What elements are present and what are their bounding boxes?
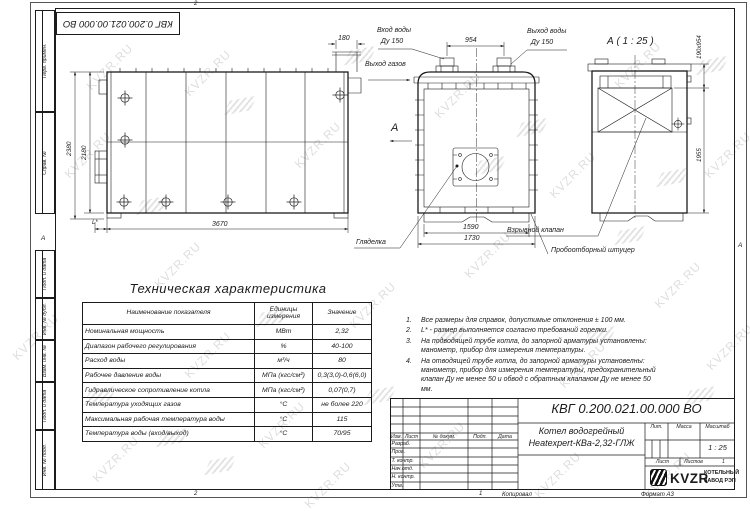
spec-header: Единицы измерения <box>255 303 313 324</box>
sign-row-nkontr: Н. контр. <box>392 475 415 480</box>
sheet-label: Лист <box>645 460 680 465</box>
spec-header: Значение <box>313 303 371 324</box>
spec-cell: % <box>255 339 313 354</box>
note-item: 3.На подводящей трубе котла, до запорной… <box>406 337 660 356</box>
dim-flue-width: 180 <box>338 35 350 42</box>
spec-cell: 2,32 <box>313 324 371 339</box>
spec-cell: °С <box>255 426 313 441</box>
sign-row-razrab: Разраб. <box>392 442 411 447</box>
note-item: 4.На отводящей трубе котла, до запорной … <box>406 357 660 395</box>
spec-table: Наименование показателя Единицы измерени… <box>82 302 372 442</box>
sign-row-utv: Утв. <box>392 484 404 489</box>
label-explosion-valve: Взрывной клапан <box>507 227 564 234</box>
margin-stamp-perv-primen: Перв. примен. <box>35 10 55 112</box>
margin-stamp-sprav-no: Справ. № <box>35 112 55 214</box>
margin-stamp-label: Подп. и дата <box>42 390 48 422</box>
spec-cell: Температура воды (вход/выход) <box>83 426 255 441</box>
label-water-inlet-dn: Ду 150 <box>381 38 403 45</box>
spec-header: Наименование показателя <box>83 303 255 324</box>
copied-label: Копировал <box>502 492 532 498</box>
rev-header-izm: Изм. <box>390 435 403 440</box>
top-designation-text: КВГ 0.200.021.00.000 ВО <box>63 18 173 29</box>
logo-subtitle-line1: КОТЕЛЬНЫЙ <box>704 471 739 476</box>
notes-list: 1.Все размеры для справок, допустимые от… <box>406 316 660 395</box>
note-item: 1.Все размеры для справок, допустимые от… <box>406 316 660 325</box>
margin-stamp-label: Взам. инв. № <box>42 345 48 377</box>
lit-label: Лит. <box>645 425 668 430</box>
sign-row-prov: Пров. <box>392 450 406 455</box>
note-number: 3. <box>406 337 421 356</box>
margin-stamp-label: Инв. № подл. <box>42 444 48 476</box>
dim-detail-height: 1955 <box>697 148 703 162</box>
spec-cell: Рабочее давление воды <box>83 368 255 383</box>
margin-stamp-label: Справ. № <box>42 151 48 175</box>
zone-marker-top: 2 <box>194 1 197 7</box>
sign-row-tkontr: Т. контр. <box>392 459 414 464</box>
note-number: 2. <box>406 326 421 335</box>
zone-marker-bottom-left: 2 <box>194 491 197 497</box>
zone-marker-bottom-right: 1 <box>479 491 482 497</box>
rev-header-docnum: № докум. <box>420 435 468 440</box>
note-number: 1. <box>406 316 421 325</box>
spec-cell: 40-100 <box>313 339 371 354</box>
spec-cell: 80 <box>313 353 371 368</box>
label-water-inlet: Вход воды <box>377 27 411 34</box>
spec-cell: Температура уходящих газов <box>83 397 255 412</box>
product-name-line2: Heatexpert-КВа-2,32-ГЛЖ <box>520 439 643 448</box>
note-text: Все размеры для справок, допустимые откл… <box>421 316 657 325</box>
scale-label: Масштаб <box>700 425 735 430</box>
margin-stamp-podp-data-1: Подп. и дата <box>35 250 55 298</box>
zone-marker-right: А <box>738 243 742 250</box>
product-name-line1: Котел водогрейный <box>520 427 643 436</box>
label-gas-outlet: Выход газов <box>365 61 406 68</box>
margin-stamp-vzam-inv: Взам. инв. № <box>35 340 55 382</box>
spec-cell: Расход воды <box>83 353 255 368</box>
note-number: 4. <box>406 357 421 395</box>
spec-cell: м³/ч <box>255 353 313 368</box>
format-label: Формат А3 <box>641 492 674 498</box>
dim-flue-outlet: 190х954 <box>697 35 703 59</box>
spec-cell: °С <box>255 397 313 412</box>
sheets-value: 1 <box>722 460 725 465</box>
spec-cell: 0,3(3,0)-0,6(6,0) <box>313 368 371 383</box>
spec-cell: не более 220 <box>313 397 371 412</box>
margin-stamp-inv-podl: Инв. № подл. <box>35 430 55 490</box>
kvzr-logo-text: KVZR <box>670 471 709 486</box>
spec-cell: 70/95 <box>313 426 371 441</box>
rev-header-data: Дата <box>492 435 518 440</box>
dim-side-total-height: 2380 <box>67 142 74 156</box>
top-designation-box: КВГ 0.200.021.00.000 ВО <box>56 12 180 35</box>
spec-cell: МПа (кгс/см²) <box>255 368 313 383</box>
dim-burner-l: L* <box>92 220 98 226</box>
mass-label: Масса <box>668 425 700 430</box>
sheets-label: Листов <box>684 460 703 465</box>
margin-stamp-label: Перв. примен. <box>42 44 48 78</box>
label-water-outlet-dn: Ду 150 <box>531 39 553 46</box>
spec-cell: МПа (кгс/см²) <box>255 382 313 397</box>
section-arrow-letter: А <box>391 123 398 134</box>
note-item: 2.L* - размер выполняется согласно требо… <box>406 326 660 335</box>
margin-stamp-label: Инв. № дубл. <box>42 303 48 335</box>
spec-cell: Гидравлическое сопротивление котла <box>83 382 255 397</box>
margin-stamp-inv-dubl: Инв. № дубл. <box>35 298 55 340</box>
dim-outer-width: 1730 <box>464 235 480 242</box>
note-text: L* - размер выполняется согласно требова… <box>421 326 657 335</box>
spec-cell: Номинальная мощность <box>83 324 255 339</box>
spec-cell: Диапазон рабочего регулирования <box>83 339 255 354</box>
spec-table-title: Техническая характеристика <box>118 281 338 296</box>
detail-view-title: А ( 1 : 25 ) <box>607 37 654 47</box>
logo-subtitle-line2: ЗАВОД РЭП <box>704 479 736 484</box>
spec-cell: 115 <box>313 412 371 427</box>
scale-value: 1 : 25 <box>700 444 735 452</box>
zone-marker-left: А <box>41 236 45 243</box>
note-text: На отводящей трубе котла, до запорной ар… <box>421 357 657 395</box>
dim-side-length: 3670 <box>212 221 228 228</box>
spec-cell: °С <box>255 412 313 427</box>
sign-row-nachotd: Нач.отд. <box>392 467 414 472</box>
dim-inner-width: 1590 <box>463 224 479 231</box>
label-sight-glass: Гляделка <box>356 239 386 246</box>
spec-cell: МВт <box>255 324 313 339</box>
dim-nozzle-spacing: 954 <box>465 37 477 44</box>
dim-side-body-height: 2180 <box>82 146 89 160</box>
spec-cell: 0,07(0,7) <box>313 382 371 397</box>
rev-header-list: Лист <box>403 435 420 440</box>
rev-header-podp: Подп. <box>468 435 492 440</box>
margin-stamp-podp-data-2: Подп. и дата <box>35 382 55 430</box>
label-water-outlet: Выход воды <box>527 28 566 35</box>
spec-cell: Максимальная рабочая температура воды <box>83 412 255 427</box>
label-sampling-fitting: Пробоотборный штуцер <box>551 247 635 254</box>
margin-stamp-label: Подп. и дата <box>42 258 48 290</box>
kvzr-logo-icon <box>650 469 667 486</box>
note-text: На подводящей трубе котла, до запорной а… <box>421 337 657 356</box>
title-block-designation: КВГ 0.200.021.00.000 ВО <box>520 402 733 415</box>
